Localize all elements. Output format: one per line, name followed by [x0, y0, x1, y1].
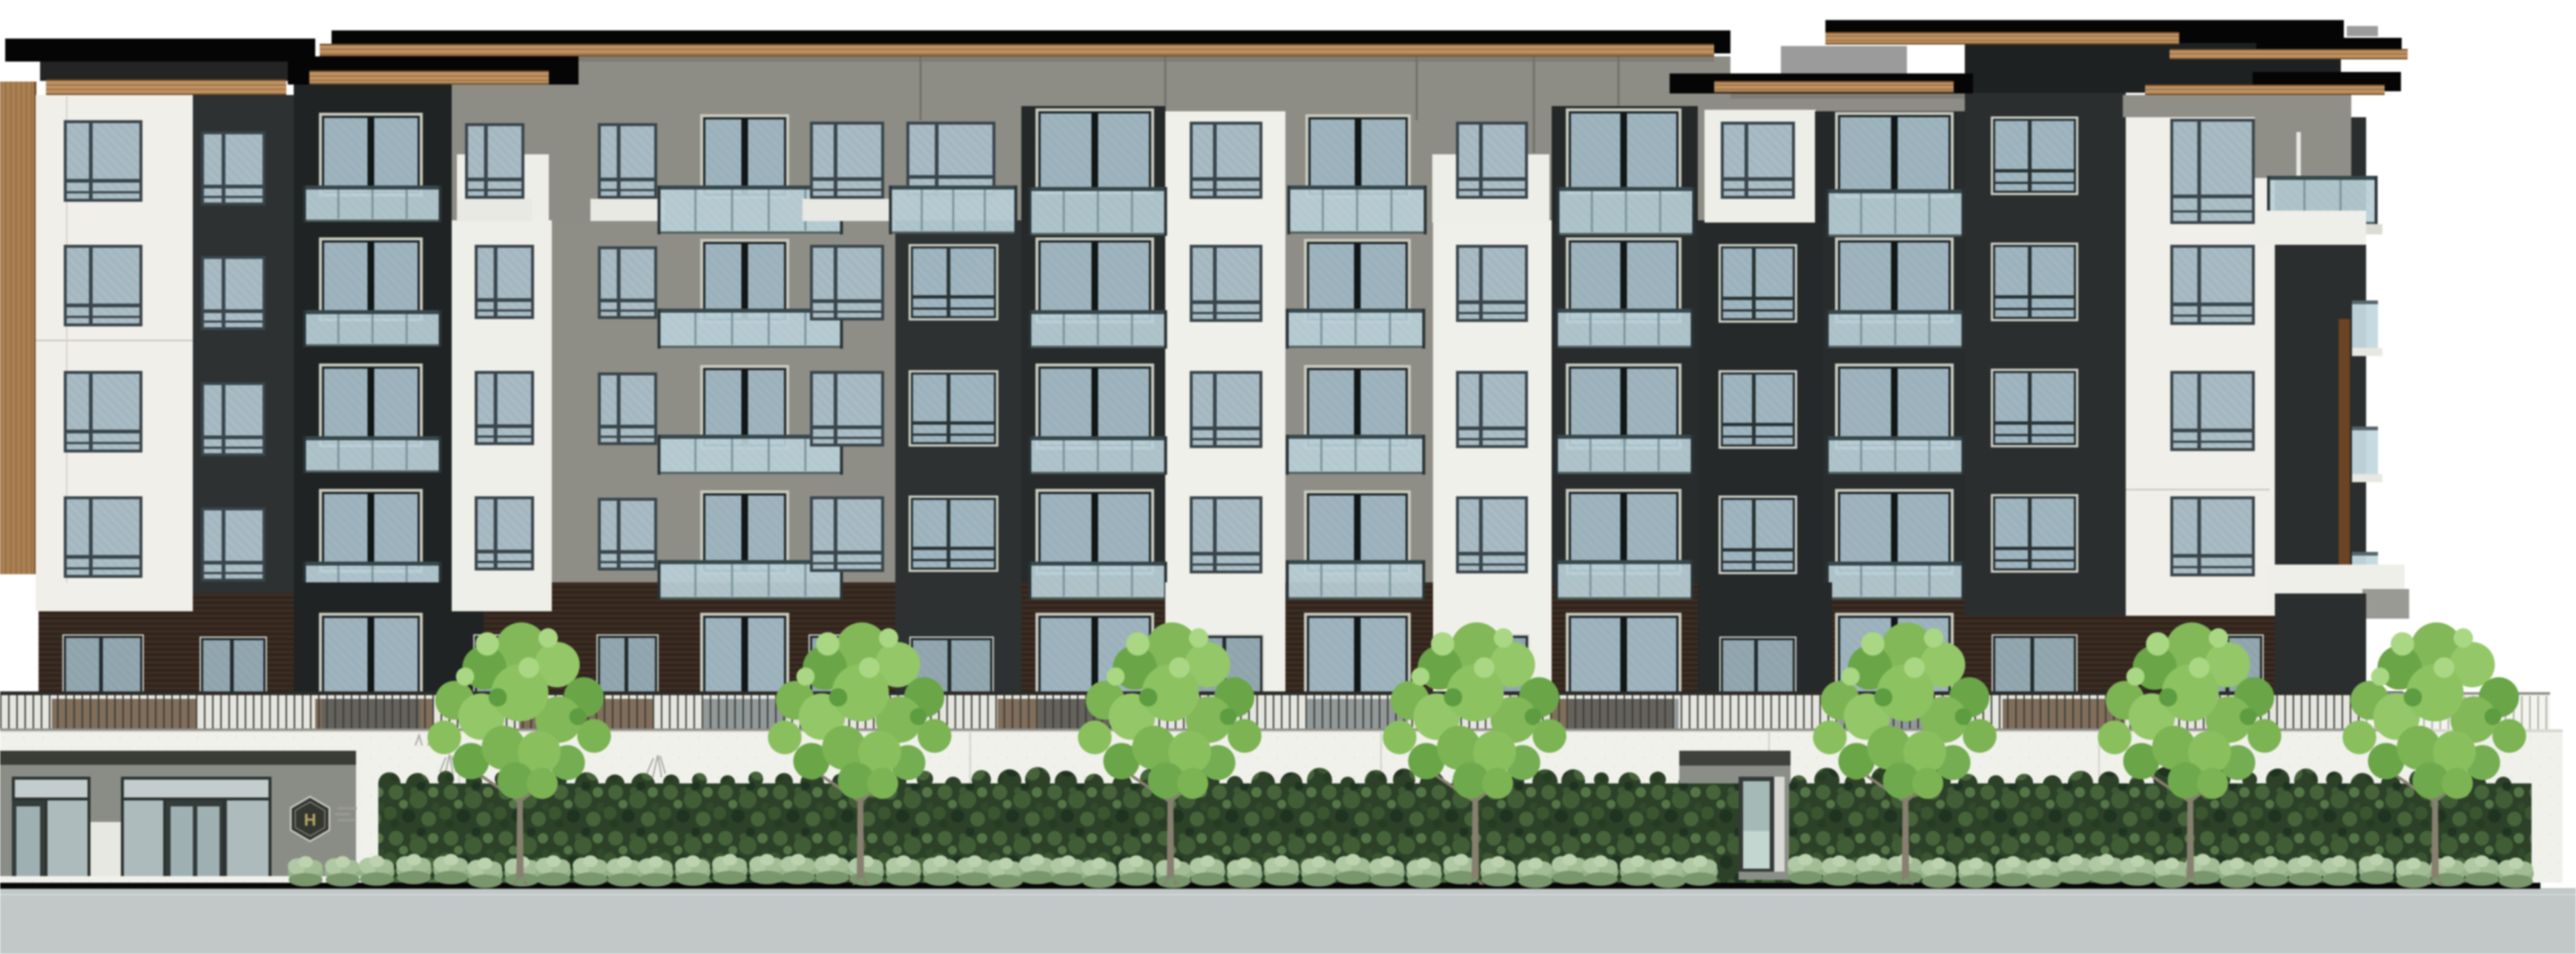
svg-text:H: H	[304, 810, 317, 829]
